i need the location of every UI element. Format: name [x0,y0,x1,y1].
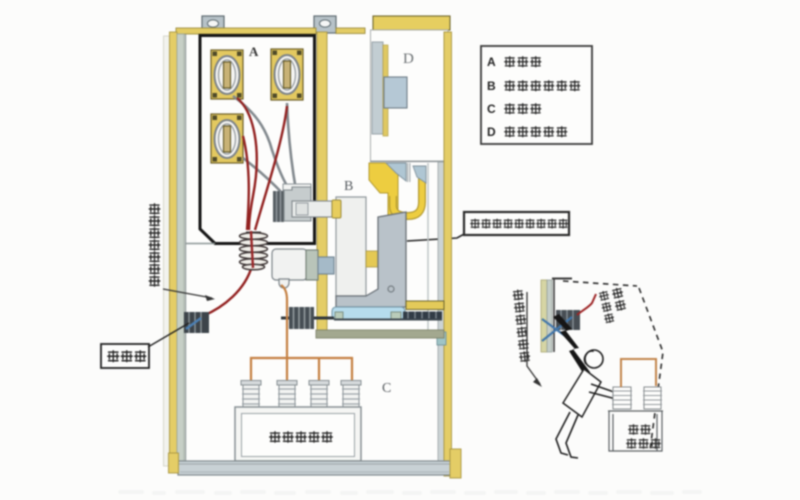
svg-text:B: B [487,79,496,93]
svg-text:C: C [382,381,391,396]
svg-text:A: A [487,55,496,69]
svg-text:D: D [403,51,414,67]
svg-text:D: D [487,125,496,139]
svg-text:C: C [487,102,496,116]
svg-text:B: B [344,179,353,194]
svg-text:A: A [249,44,259,59]
